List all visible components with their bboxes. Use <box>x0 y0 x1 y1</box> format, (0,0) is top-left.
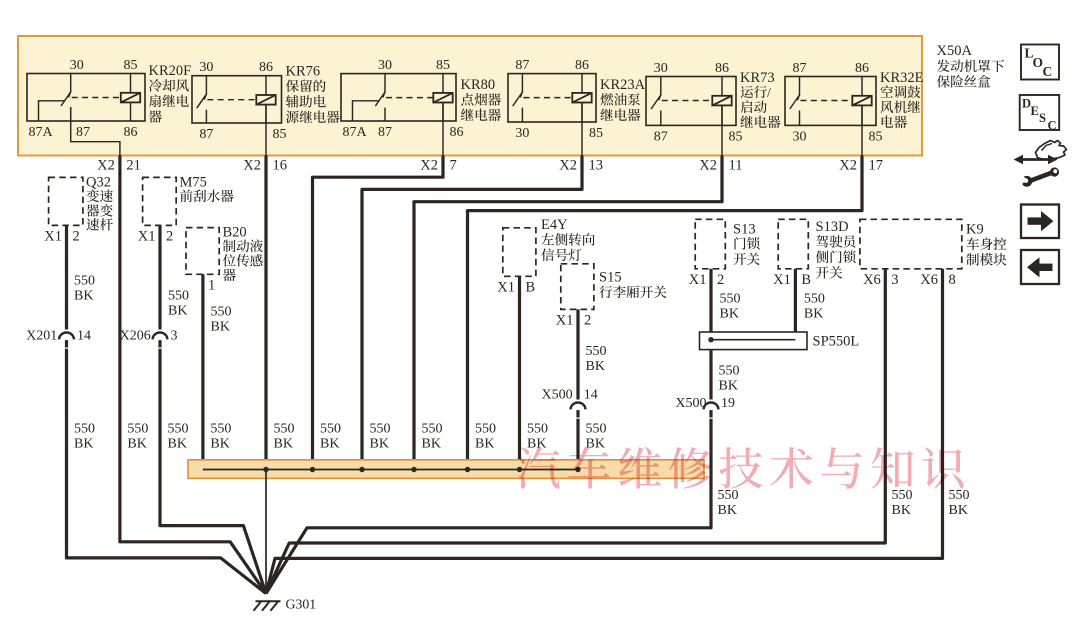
svg-text:BK: BK <box>168 432 187 452</box>
svg-text:11: 11 <box>729 154 743 175</box>
svg-text:85: 85 <box>124 54 138 74</box>
svg-text:87: 87 <box>378 121 392 141</box>
svg-text:86: 86 <box>450 121 464 141</box>
svg-text:速杆: 速杆 <box>86 214 114 234</box>
svg-text:B: B <box>801 268 811 289</box>
svg-text:2: 2 <box>166 224 173 245</box>
svg-text:BK: BK <box>804 303 823 323</box>
svg-text:30: 30 <box>199 56 213 76</box>
svg-text:87: 87 <box>76 121 90 141</box>
svg-text:86: 86 <box>575 54 589 74</box>
svg-text:X2: X2 <box>243 154 261 175</box>
svg-text:开关: 开关 <box>816 262 844 282</box>
svg-text:X2: X2 <box>699 154 717 175</box>
svg-text:X1: X1 <box>44 224 62 245</box>
svg-text:21: 21 <box>126 154 140 175</box>
svg-text:BK: BK <box>320 432 339 452</box>
svg-text:前刮水器: 前刮水器 <box>180 185 235 205</box>
svg-text:BK: BK <box>210 432 229 452</box>
svg-text:电器: 电器 <box>880 111 908 131</box>
svg-text:X6: X6 <box>920 268 938 289</box>
svg-text:S: S <box>1039 108 1046 126</box>
svg-text:30: 30 <box>793 125 807 145</box>
svg-text:汽车维修技术与知识: 汽车维修技术与知识 <box>516 433 971 498</box>
svg-text:X500: X500 <box>675 392 706 412</box>
svg-text:B: B <box>526 275 536 296</box>
svg-text:86: 86 <box>259 56 273 76</box>
svg-text:BK: BK <box>892 499 911 519</box>
svg-text:C: C <box>1043 60 1053 80</box>
svg-text:X2: X2 <box>420 154 438 175</box>
svg-text:制模块: 制模块 <box>966 249 1007 269</box>
svg-text:3: 3 <box>171 325 178 345</box>
svg-text:C: C <box>1048 115 1057 133</box>
svg-text:继电器: 继电器 <box>740 111 781 131</box>
svg-text:BK: BK <box>718 499 737 519</box>
svg-text:继电器: 继电器 <box>600 104 641 124</box>
svg-text:SP550L: SP550L <box>813 330 860 351</box>
svg-text:O: O <box>1033 51 1044 71</box>
svg-text:2: 2 <box>73 224 80 245</box>
svg-text:器: 器 <box>149 106 163 126</box>
svg-text:3: 3 <box>891 268 898 289</box>
svg-text:G301: G301 <box>286 593 317 613</box>
svg-text:87: 87 <box>199 123 213 143</box>
svg-text:X1: X1 <box>556 308 574 329</box>
svg-text:X2: X2 <box>559 154 577 175</box>
svg-text:8: 8 <box>949 268 956 289</box>
svg-text:BK: BK <box>949 499 968 519</box>
svg-text:X1: X1 <box>138 224 156 245</box>
svg-text:2: 2 <box>584 308 591 329</box>
svg-text:2: 2 <box>717 268 724 289</box>
svg-text:14: 14 <box>584 383 598 403</box>
svg-text:14: 14 <box>77 325 91 345</box>
svg-text:19: 19 <box>721 392 735 412</box>
svg-text:X2: X2 <box>839 154 857 175</box>
svg-text:BK: BK <box>168 300 187 320</box>
svg-text:16: 16 <box>273 154 288 175</box>
svg-text:30: 30 <box>378 54 392 74</box>
svg-text:13: 13 <box>589 154 604 175</box>
svg-text:X1: X1 <box>773 268 791 289</box>
svg-text:保险丝盒: 保险丝盒 <box>937 71 992 91</box>
svg-text:BK: BK <box>74 432 93 452</box>
svg-text:继电器: 继电器 <box>461 104 502 124</box>
svg-text:BK: BK <box>74 285 93 305</box>
svg-text:87A: 87A <box>28 121 53 141</box>
svg-text:86: 86 <box>715 57 729 77</box>
svg-text:BK: BK <box>127 432 146 452</box>
svg-text:X6: X6 <box>863 268 881 289</box>
svg-text:源继电器: 源继电器 <box>286 106 341 126</box>
svg-text:87: 87 <box>515 54 529 74</box>
svg-text:X1: X1 <box>689 268 707 289</box>
svg-text:BK: BK <box>211 316 230 336</box>
svg-text:X201: X201 <box>26 325 57 345</box>
svg-text:信号灯: 信号灯 <box>541 244 582 264</box>
svg-text:85: 85 <box>273 123 287 143</box>
svg-text:BK: BK <box>720 303 739 323</box>
svg-text:BK: BK <box>475 432 494 452</box>
svg-text:30: 30 <box>515 122 529 142</box>
svg-text:X500: X500 <box>541 383 572 403</box>
svg-text:87A: 87A <box>342 121 367 141</box>
svg-text:86: 86 <box>124 121 138 141</box>
svg-text:87: 87 <box>793 57 807 77</box>
svg-text:17: 17 <box>869 154 884 175</box>
svg-text:BK: BK <box>370 432 389 452</box>
svg-text:行李厢开关: 行李厢开关 <box>599 281 667 301</box>
svg-text:BK: BK <box>422 432 441 452</box>
svg-text:1: 1 <box>208 273 215 294</box>
svg-text:BK: BK <box>586 355 605 375</box>
svg-text:开关: 开关 <box>733 248 761 268</box>
svg-text:器: 器 <box>223 264 237 284</box>
svg-text:BK: BK <box>274 432 293 452</box>
svg-text:86: 86 <box>855 57 869 77</box>
svg-text:X206: X206 <box>120 325 151 345</box>
svg-text:7: 7 <box>450 154 457 175</box>
svg-text:30: 30 <box>654 57 668 77</box>
svg-text:30: 30 <box>70 54 84 74</box>
svg-text:85: 85 <box>436 54 450 74</box>
svg-text:85: 85 <box>589 122 603 142</box>
svg-text:87: 87 <box>654 125 668 145</box>
svg-text:X1: X1 <box>497 275 515 296</box>
svg-text:E: E <box>1031 101 1039 119</box>
